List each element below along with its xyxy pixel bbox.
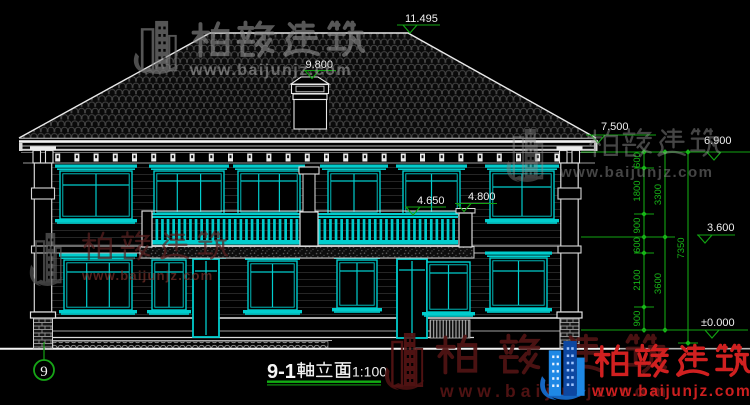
svg-text:900: 900	[632, 218, 643, 234]
svg-text:9: 9	[40, 364, 48, 380]
svg-text:www.baijunjz.com: www.baijunjz.com	[559, 164, 713, 181]
svg-text:600: 600	[632, 237, 643, 253]
svg-text:3.600: 3.600	[707, 222, 735, 234]
svg-text:2100: 2100	[632, 269, 643, 290]
svg-text:9-1: 9-1	[267, 361, 296, 383]
svg-text:900: 900	[632, 311, 643, 327]
svg-text:www.baijunjz.com: www.baijunjz.com	[81, 268, 213, 283]
svg-text:3300: 3300	[653, 184, 664, 205]
svg-text:7.500: 7.500	[601, 121, 629, 133]
svg-text:4.800: 4.800	[468, 191, 496, 203]
svg-text:3600: 3600	[653, 273, 664, 294]
svg-text:11.495: 11.495	[405, 13, 438, 25]
svg-text:7350: 7350	[676, 237, 687, 258]
svg-text:1800: 1800	[632, 180, 643, 201]
svg-text:1:100: 1:100	[352, 364, 387, 380]
svg-text:4.650: 4.650	[417, 195, 445, 207]
svg-text:±0.000: ±0.000	[701, 317, 735, 329]
svg-text:www.baijunjz.com: www.baijunjz.com	[591, 383, 750, 400]
svg-text:www.baijunjz.com: www.baijunjz.com	[189, 62, 352, 79]
